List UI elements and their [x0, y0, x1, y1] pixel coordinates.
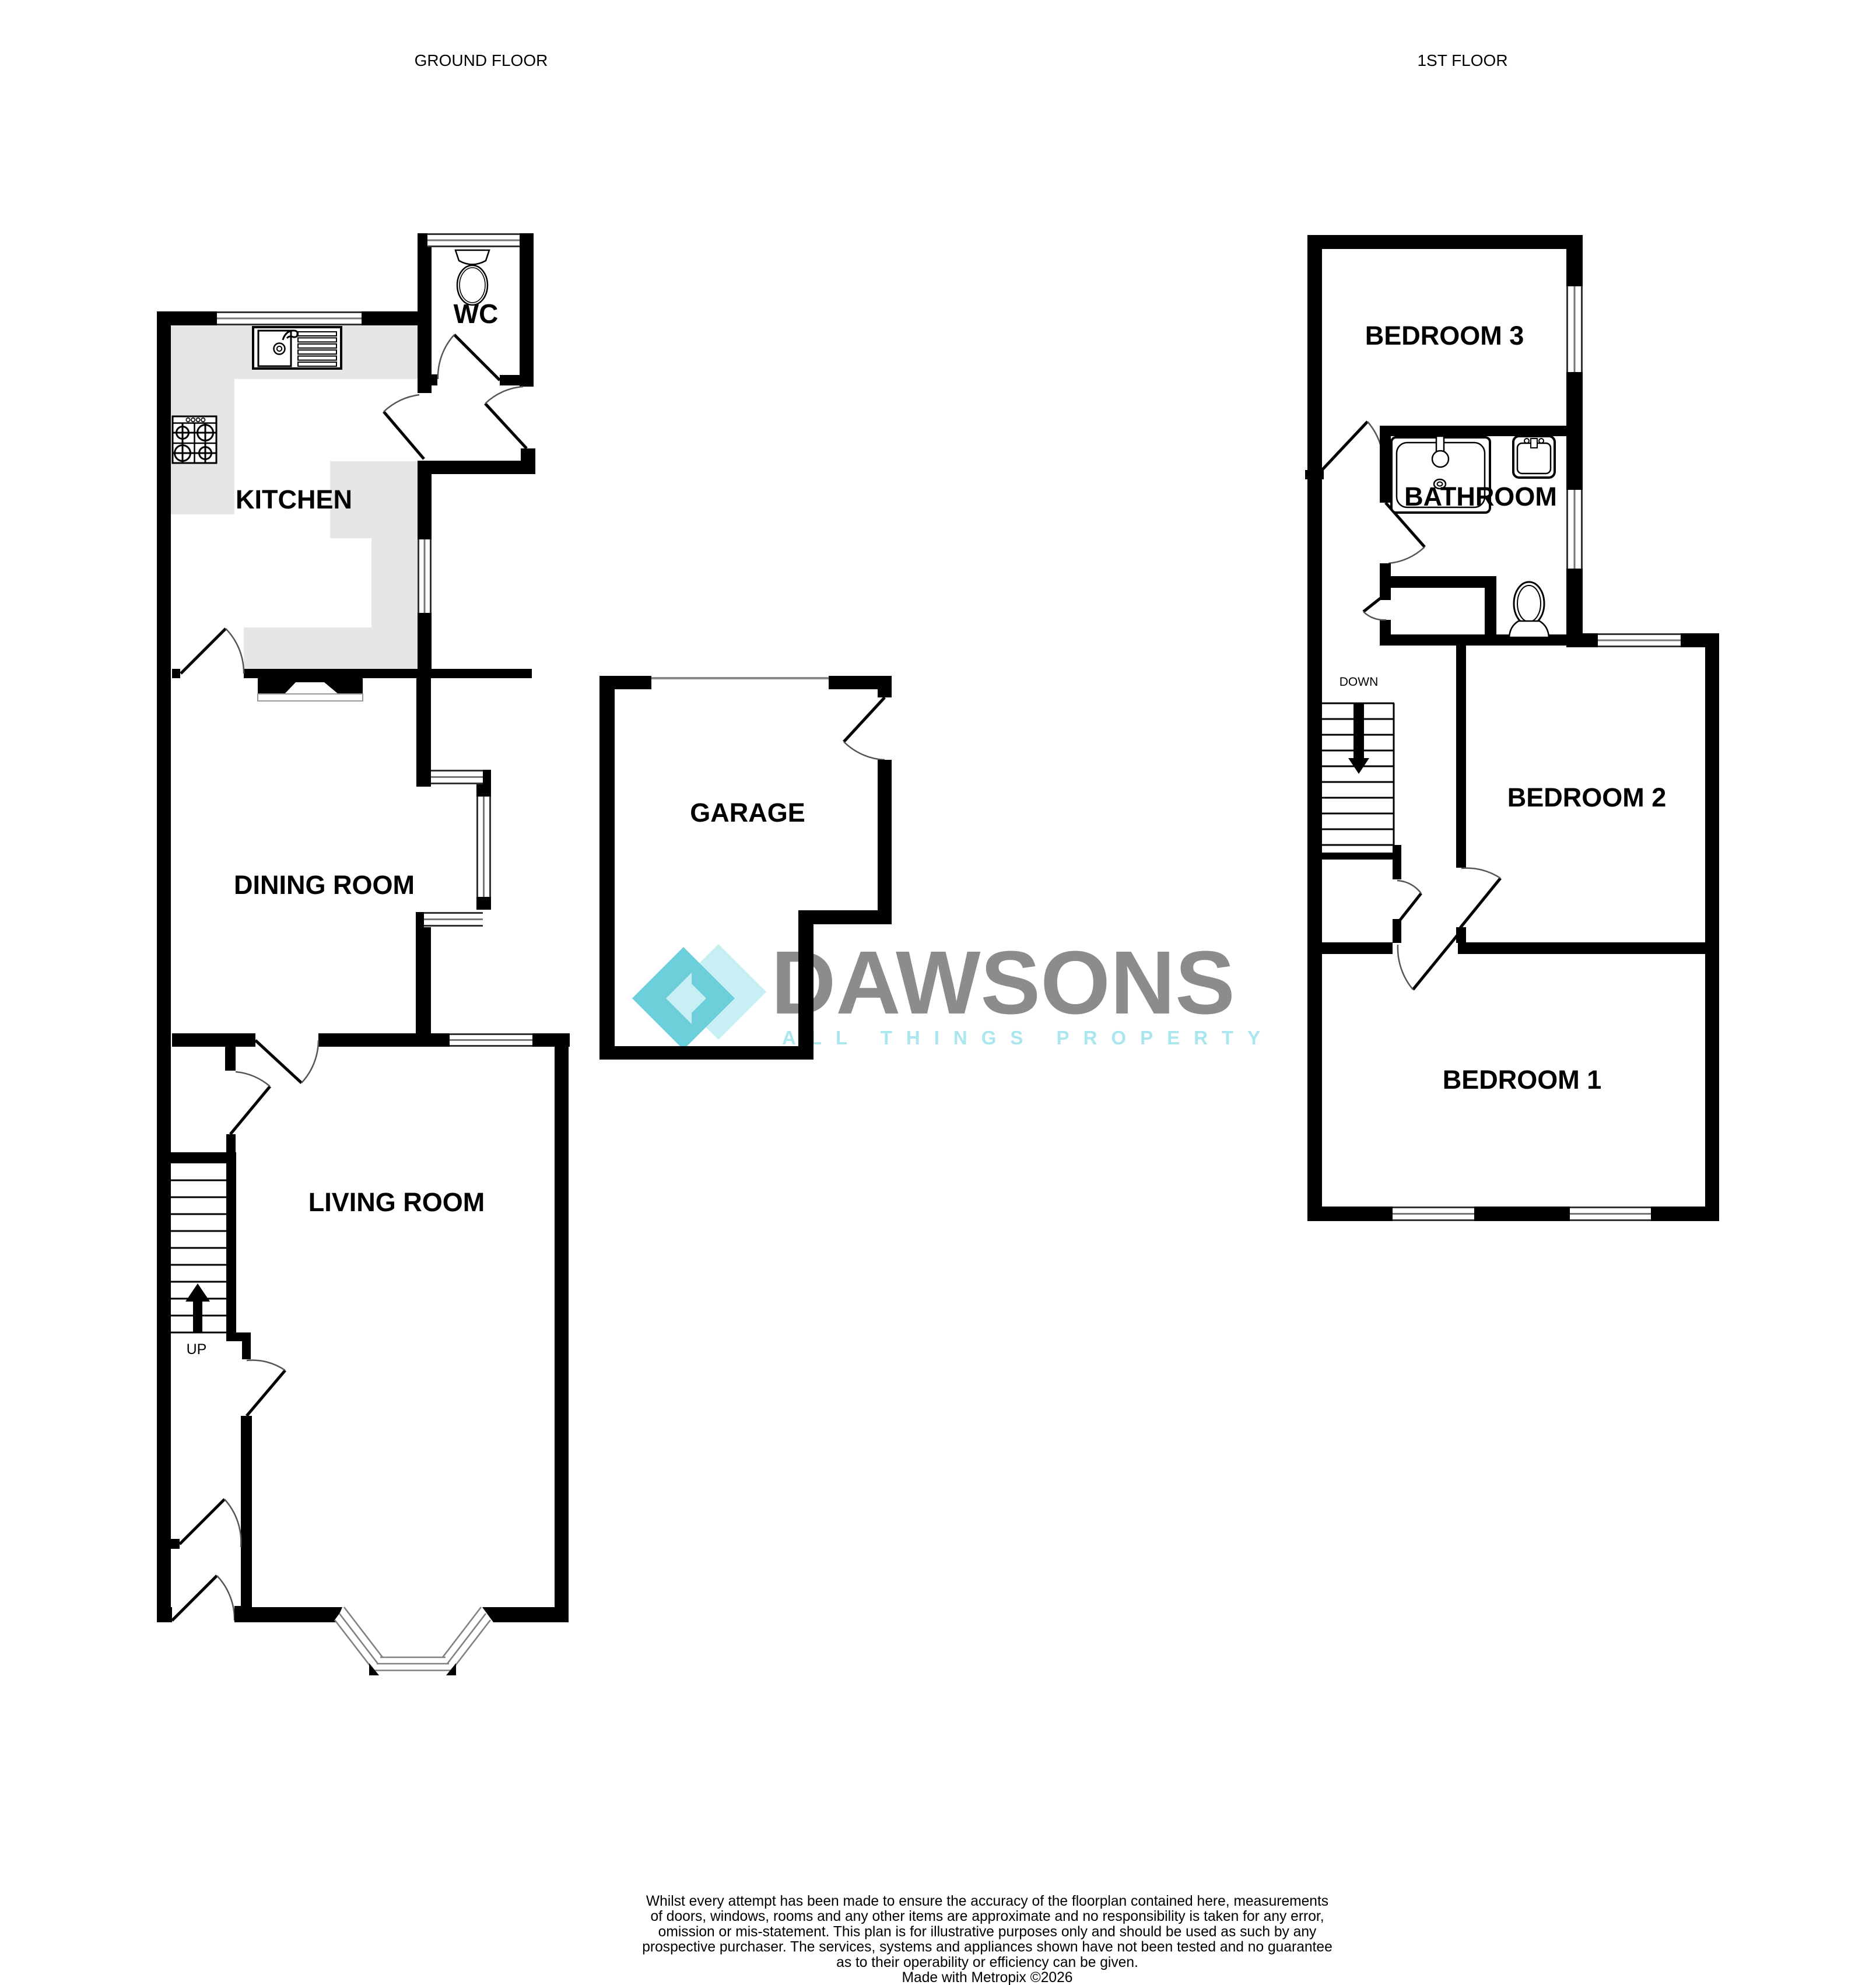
- svg-text:KITCHEN: KITCHEN: [236, 485, 352, 514]
- svg-text:DINING ROOM: DINING ROOM: [234, 870, 415, 900]
- svg-text:Made with Metropix ©2026: Made with Metropix ©2026: [902, 1970, 1073, 1985]
- svg-text:GROUND FLOOR: GROUND FLOOR: [415, 51, 548, 69]
- svg-text:1ST FLOOR: 1ST FLOOR: [1417, 51, 1507, 69]
- svg-text:Whilst every attempt has been: Whilst every attempt has been made to en…: [646, 1893, 1328, 1909]
- svg-text:ALL THINGS PROPERTY: ALL THINGS PROPERTY: [782, 1027, 1274, 1048]
- svg-text:omission or mis-statement. Thi: omission or mis-statement. This plan is …: [658, 1924, 1317, 1940]
- svg-text:DAWSONS: DAWSONS: [771, 932, 1235, 1033]
- svg-text:prospective purchaser. The ser: prospective purchaser. The services, sys…: [642, 1940, 1333, 1955]
- svg-text:WC: WC: [454, 299, 499, 329]
- svg-text:BEDROOM 2: BEDROOM 2: [1507, 783, 1667, 812]
- svg-text:GARAGE: GARAGE: [690, 798, 805, 827]
- svg-text:as to their operability or eff: as to their operability or efficiency ca…: [836, 1955, 1138, 1970]
- svg-text:BEDROOM 1: BEDROOM 1: [1443, 1065, 1602, 1095]
- svg-text:BEDROOM 3: BEDROOM 3: [1365, 321, 1524, 350]
- svg-text:LIVING ROOM: LIVING ROOM: [308, 1187, 485, 1217]
- svg-text:DOWN: DOWN: [1340, 675, 1379, 689]
- svg-text:of doors, windows, rooms and a: of doors, windows, rooms and any other i…: [650, 1909, 1324, 1924]
- svg-text:BATHROOM: BATHROOM: [1404, 482, 1557, 511]
- svg-text:UP: UP: [187, 1341, 207, 1358]
